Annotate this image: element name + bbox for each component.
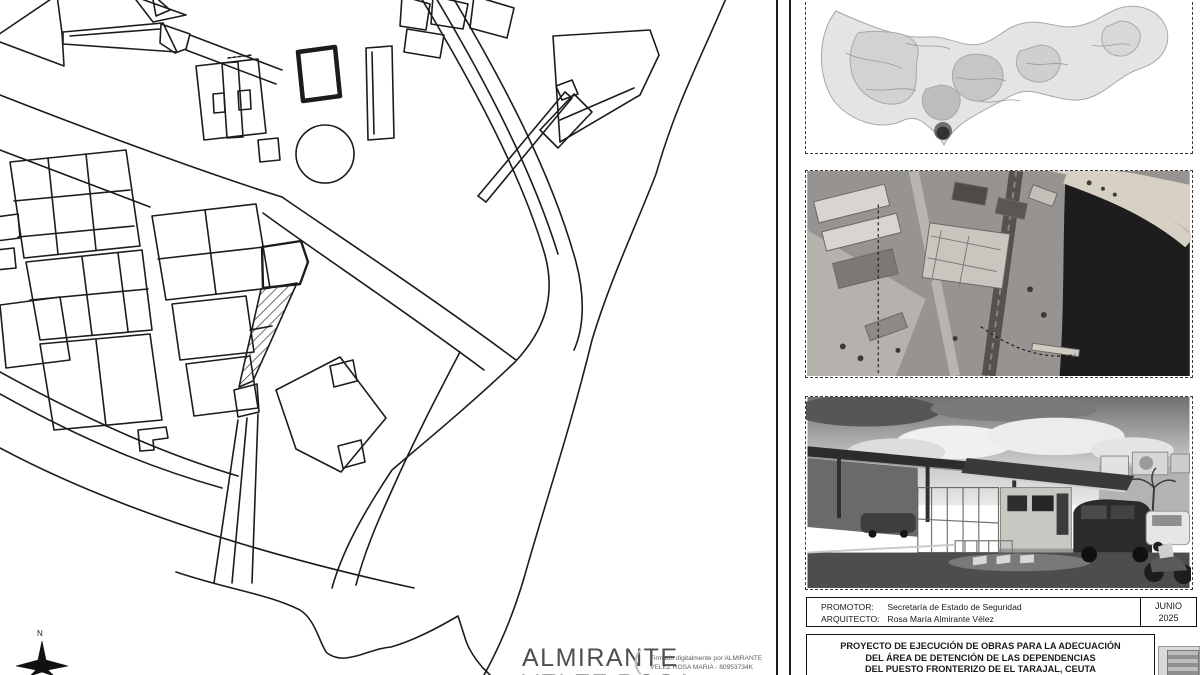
- sheet-border-line-outer: [789, 0, 791, 675]
- promotor-value: Secretaría de Estado de Seguridad: [887, 602, 1021, 612]
- arquitecto-label: ARQUITECTO:: [821, 613, 885, 625]
- promotor-label: PROMOTOR:: [821, 601, 885, 613]
- project-title-line3: DEL PUESTO FRONTERIZO DE EL TARAJAL, CEU…: [807, 664, 1154, 675]
- site-photo: [806, 397, 1191, 588]
- project-title-line2: DEL ÁREA DE DETENCIÓN DE LAS DEPENDENCIA…: [807, 653, 1154, 665]
- date-year: 2025: [1141, 612, 1196, 624]
- project-title-line1: PROYECTO DE EJECUCIÓN DE OBRAS PARA LA A…: [807, 641, 1154, 653]
- location-dot-icon: [937, 127, 950, 140]
- signature-details-line2: VELEZ ROSA MARIA - 80953734K: [650, 664, 800, 673]
- title-block-row1: PROMOTOR: Secretaría de Estado de Seguri…: [806, 597, 1197, 627]
- sheet-border-line-inner: [776, 0, 778, 675]
- stamp-image: [1167, 650, 1199, 675]
- title-block-credits: PROMOTOR: Secretaría de Estado de Seguri…: [807, 598, 1140, 626]
- aerial-photo-panel: [805, 170, 1193, 378]
- date-cell: JUNIO 2025: [1140, 598, 1196, 626]
- aerial-photo: [806, 171, 1191, 376]
- site-photo-panel: [805, 396, 1193, 590]
- arquitecto-value: Rosa María Almirante Vélez: [887, 614, 994, 624]
- signature-details-line1: Firmado digitalmente por ALMIRANTE: [650, 655, 800, 664]
- location-map: [806, 0, 1191, 152]
- signature-details: Firmado digitalmente por ALMIRANTE VELEZ…: [650, 655, 800, 672]
- date-month: JUNIO: [1141, 600, 1196, 612]
- drawing-sheet: N ALMIRANTE VELEZ ROSA ( Firmado digital…: [0, 0, 1200, 675]
- location-map-panel: [805, 0, 1193, 154]
- compass-rose-icon: [16, 641, 68, 675]
- site-plan-drawing: [0, 0, 777, 675]
- approval-stamp: Obra: [1158, 646, 1200, 675]
- signature-seal-icon: (: [633, 645, 642, 675]
- project-title-block: PROYECTO DE EJECUCIÓN DE OBRAS PARA LA A…: [806, 634, 1155, 675]
- compass-north-label: N: [37, 629, 43, 638]
